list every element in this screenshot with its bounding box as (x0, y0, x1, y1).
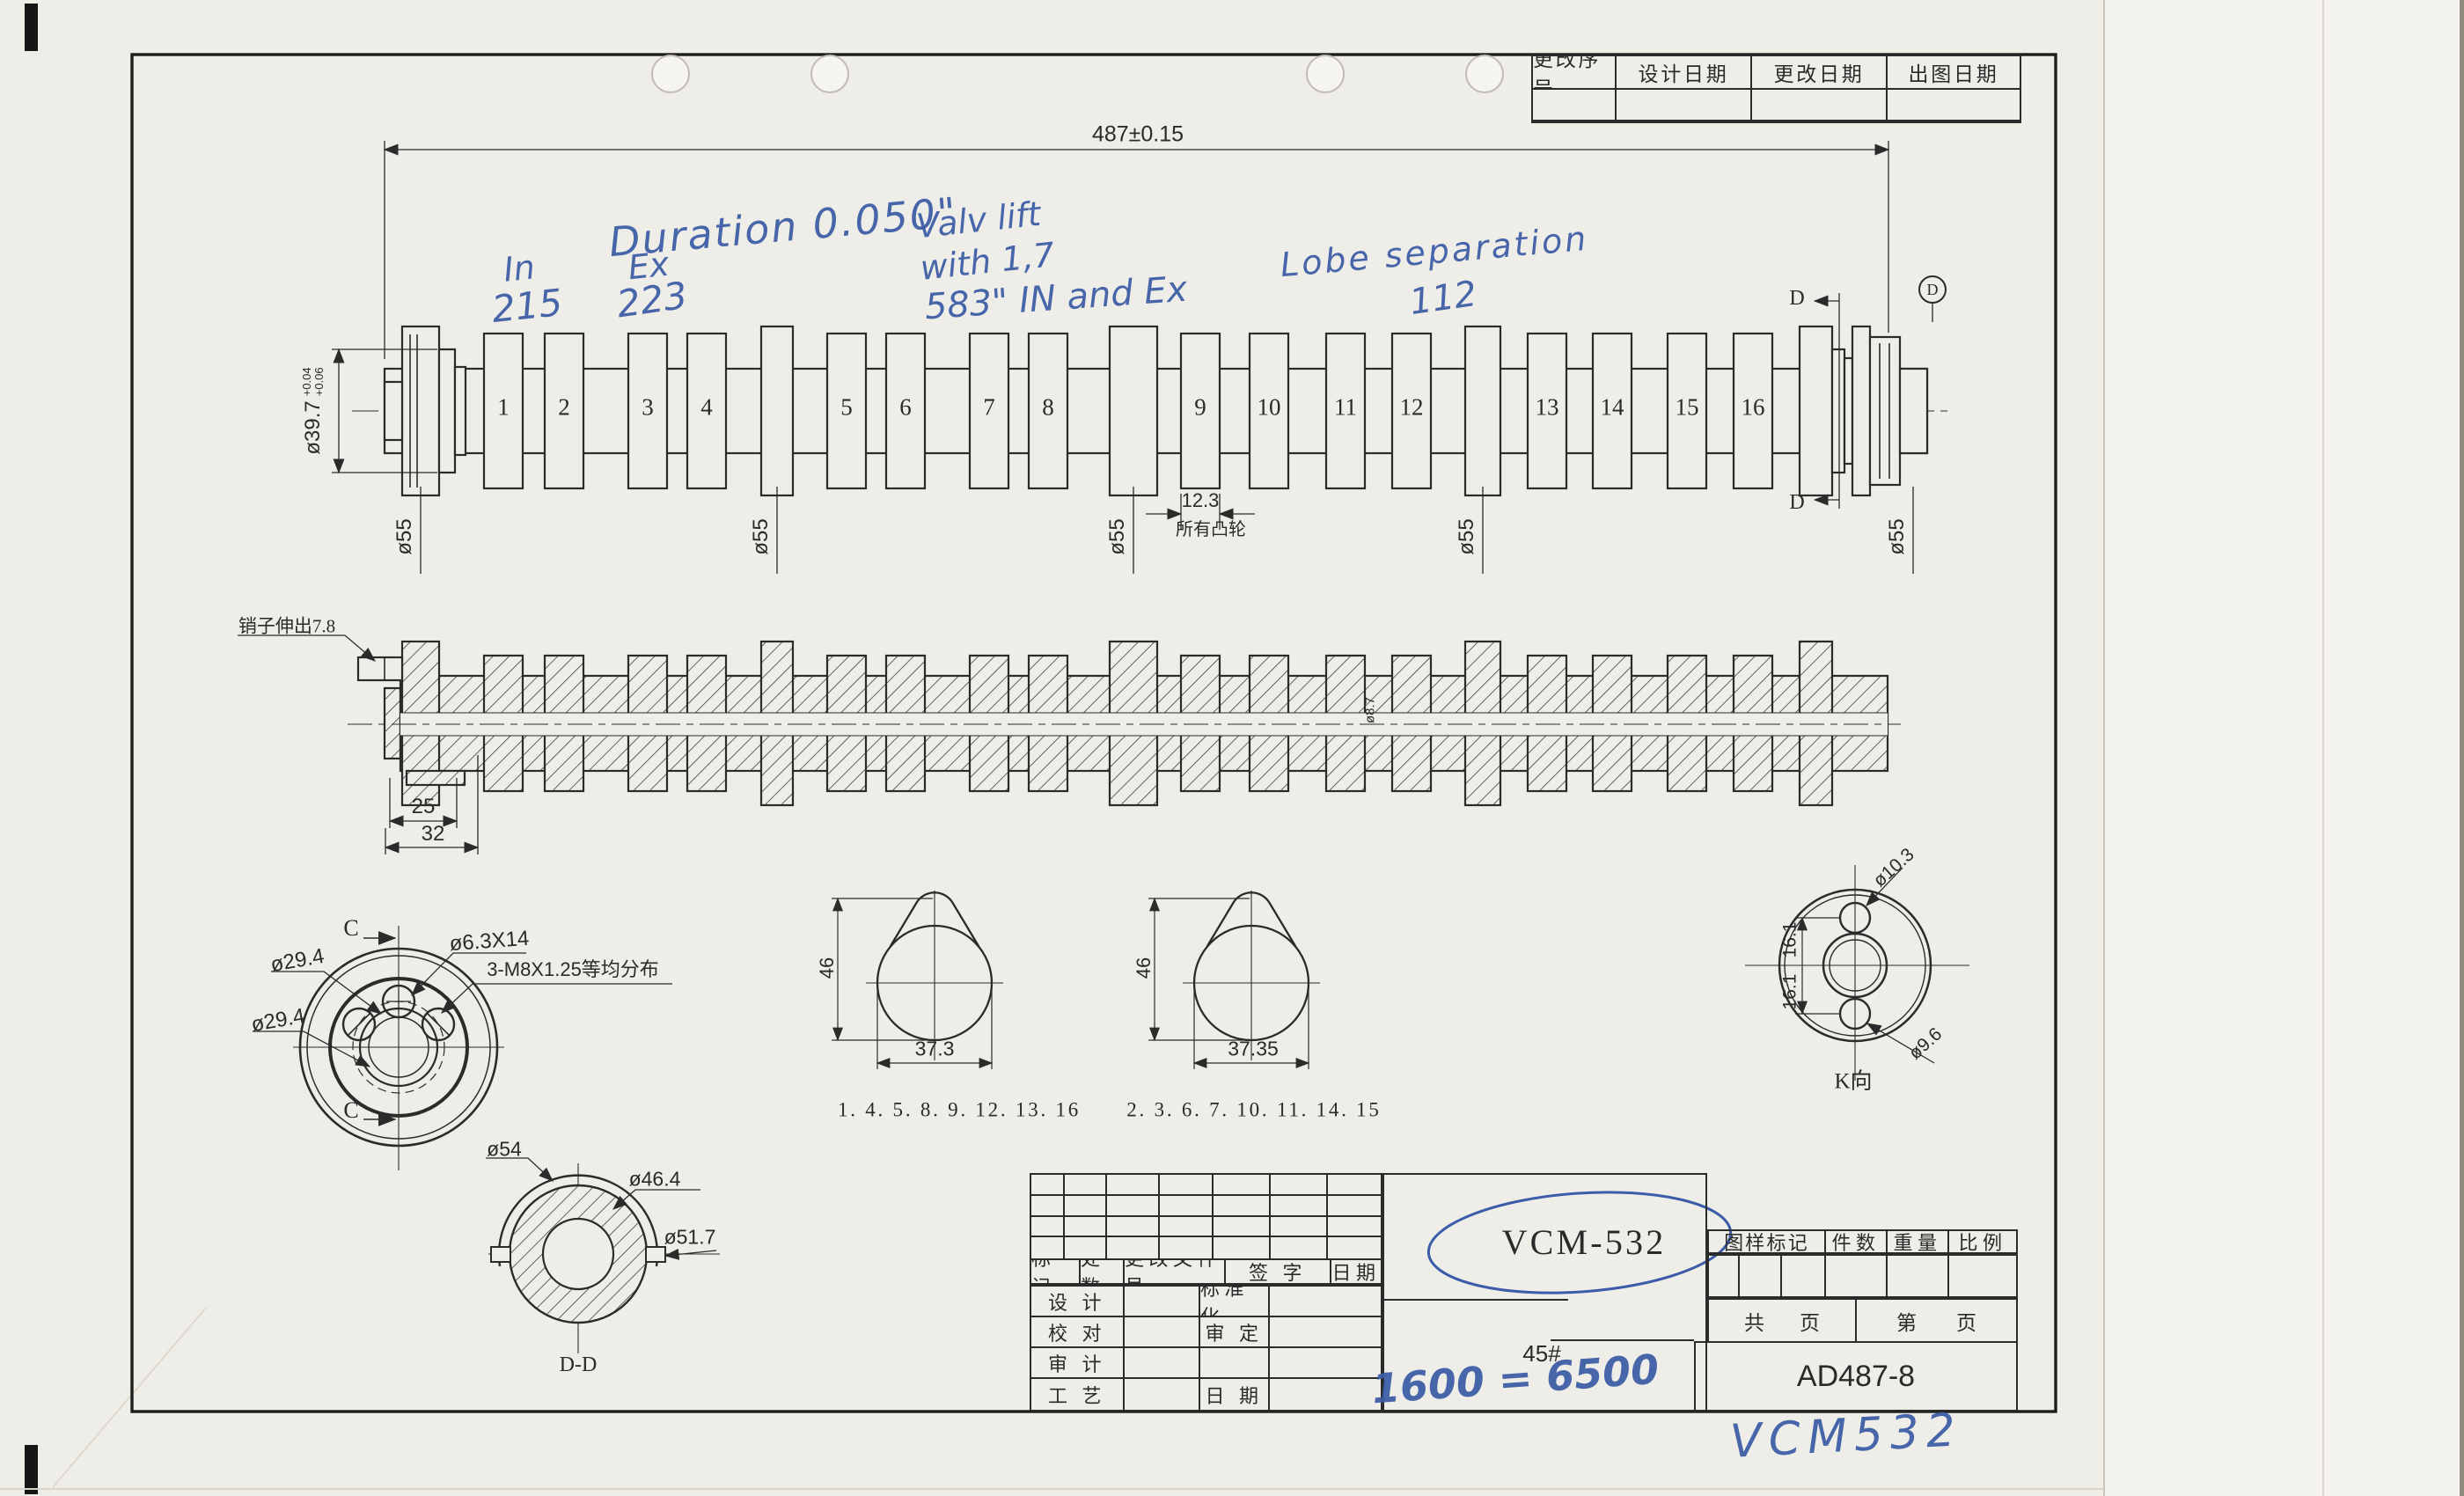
journal-number-14: 14 (1601, 396, 1624, 420)
journal-number-16: 16 (1742, 396, 1765, 420)
dd-shell-dia: ø51.7 (664, 1228, 716, 1248)
journal-diameter-label-1: ø55 (394, 518, 415, 554)
punch-holes (652, 55, 1503, 92)
journal-number-6: 6 (899, 396, 912, 420)
revision-header-table: 更改序号 设计日期 更改日期 出图日期 (1531, 55, 2021, 123)
journal-number-5: 5 (840, 396, 853, 420)
dim-pin-diameter: ø8.7 (1364, 697, 1377, 723)
journal-number-9: 9 (1194, 396, 1206, 420)
row-standardize: 标准化 (1200, 1287, 1270, 1317)
cam2-lobe-list: 2. 3. 6. 7. 10. 11. 14. 15 (1126, 1100, 1381, 1120)
th-date: 日期 (1331, 1260, 1381, 1285)
hw-ex-value: 223 (614, 277, 689, 324)
hw-in-value: 215 (490, 284, 564, 328)
scan-corner-mark-bottom (25, 1445, 38, 1494)
titleblock-sign-rows: 设 计 标准化 校 对 审 定 审 计 工 艺 日 期 (1030, 1285, 1382, 1412)
row-approve: 审 定 (1200, 1317, 1270, 1348)
scan-edge (2460, 0, 2464, 1496)
section-c-letter-bottom: C (343, 1099, 358, 1122)
th-scale: 比例 (1949, 1231, 2016, 1254)
journal-number-10: 10 (1258, 396, 1281, 420)
camshaft-section-view (348, 642, 1901, 805)
dim-lobe-width: 12.3 (1182, 491, 1220, 510)
section-d-letter-top: D (1789, 288, 1804, 309)
pages-total-label: 共 (1744, 1306, 1764, 1336)
rev-col-issue-date: 出图日期 (1888, 56, 2020, 90)
hw-in-label: In (502, 250, 536, 286)
drawing-number-cell: AD487-8 (1694, 1341, 2018, 1412)
row-design: 设 计 (1031, 1287, 1125, 1317)
k-spacing-2: 16.1 (1781, 974, 1800, 1010)
nose-tol-upper: +0.04 (301, 367, 313, 396)
journal-diameter-label-4: ø55 (1456, 518, 1478, 554)
hw-lobe-separation-value: 112 (1407, 276, 1478, 320)
section-d-letter-bottom: D (1789, 492, 1804, 513)
hw-part-number: VCM532 (1729, 1407, 1963, 1465)
th-mark: 标记 (1031, 1260, 1081, 1285)
journal-number-11: 11 (1334, 396, 1357, 420)
titleblock-sign-header: 标记 处数 更改文件号 签 字 日期 (1030, 1258, 1382, 1287)
th-signature: 签 字 (1226, 1260, 1331, 1285)
journal-number-1: 1 (497, 396, 510, 420)
scanned-camshaft-drawing: 487±0.15 ø39.7 +0.04 +0.06 12.3 所有凸轮 D D… (0, 0, 2464, 1496)
journal-diameter-label-3: ø55 (1107, 518, 1128, 554)
journal-number-12: 12 (1400, 396, 1424, 420)
titleblock-spec-cells (1707, 1254, 2018, 1300)
dd-bore-dia: ø46.4 (629, 1170, 681, 1190)
dim-hole-spec: ø6.3X14 (449, 928, 530, 955)
titleblock-spec-header: 图样标记 件数 重量 比例 (1707, 1229, 2018, 1256)
cam2-width: 37.35 (1228, 1039, 1279, 1060)
dim-key-32: 32 (422, 824, 445, 845)
scan-corner-mark-top (25, 4, 38, 51)
stamp-part-number: VCM-532 (1502, 1225, 1667, 1260)
drawing-number: AD487-8 (1797, 1360, 1915, 1394)
dd-section-view (486, 1158, 720, 1353)
cam1-width: 37.3 (915, 1039, 955, 1060)
titleblock-pages-row: 共 页 第 页 (1707, 1298, 2018, 1343)
rev-col-design-date: 设计日期 (1617, 56, 1752, 90)
note-all-lobes: 所有凸轮 (1176, 521, 1246, 539)
journal-number-2: 2 (558, 396, 570, 420)
rev-col-change-date: 更改日期 (1752, 56, 1888, 90)
pages-current-label: 第 (1896, 1306, 1917, 1336)
journal-number-7: 7 (983, 396, 995, 420)
th-change-doc: 更改文件号 (1125, 1260, 1226, 1285)
section-c-letter-top: C (343, 917, 358, 940)
th-weight: 重量 (1888, 1231, 1949, 1254)
cam1-height: 46 (818, 957, 837, 979)
note-pin-protrusion: 销子伸出7.8 (238, 618, 335, 636)
th-count: 处数 (1081, 1260, 1125, 1285)
th-drawing-mark: 图样标记 (1709, 1231, 1826, 1254)
journal-number-8: 8 (1042, 396, 1054, 420)
cam1-lobe-list: 1. 4. 5. 8. 9. 12. 13. 16 (838, 1100, 1081, 1120)
journal-number-13: 13 (1536, 396, 1559, 420)
row-audit: 审 计 (1031, 1348, 1125, 1379)
nose-tol-lower: +0.06 (313, 367, 326, 396)
titleblock-revision-grid (1030, 1173, 1382, 1260)
dim-nose-diameter: ø39.7 +0.04 +0.06 (301, 367, 326, 454)
pages-current-unit: 页 (1956, 1306, 1976, 1336)
journal-number-4: 4 (700, 396, 713, 420)
dd-label: D-D (560, 1354, 598, 1375)
rev-col-change-no: 更改序号 (1533, 56, 1617, 90)
k-spacing-1: 16.1 (1781, 922, 1800, 958)
camshaft-side-view (352, 326, 1949, 495)
dd-outer-dia: ø54 (487, 1140, 522, 1160)
cam2-height: 46 (1134, 957, 1154, 979)
dim-thread-spec: 3-M8X1.25等均分布 (487, 960, 659, 979)
k-direction-view (1745, 865, 1969, 1081)
journal-diameter-label-2: ø55 (751, 518, 772, 554)
crease-line (53, 1307, 207, 1487)
pages-total-unit: 页 (1800, 1306, 1820, 1336)
nose-dia-value: ø39.7 (303, 400, 324, 454)
row-process: 工 艺 (1031, 1379, 1125, 1410)
row-check: 校 对 (1031, 1317, 1125, 1348)
th-qty: 件数 (1826, 1231, 1888, 1254)
k-view-label: K向 (1834, 1071, 1872, 1093)
journal-number-15: 15 (1676, 396, 1699, 420)
dim-key-25: 25 (412, 796, 436, 818)
journal-diameter-label-5: ø55 (1887, 518, 1908, 554)
dim-overall-length: 487±0.15 (1092, 124, 1184, 146)
row-date: 日 期 (1200, 1379, 1270, 1410)
journal-number-3: 3 (642, 396, 654, 420)
balloon-letter: D (1927, 282, 1939, 297)
